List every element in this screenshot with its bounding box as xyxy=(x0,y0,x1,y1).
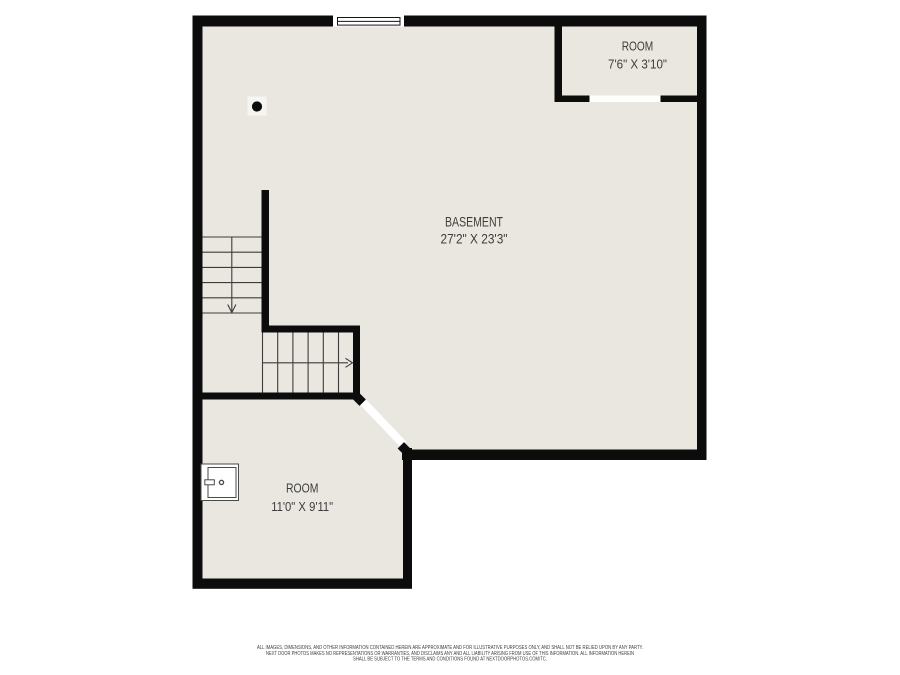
svg-text:27'2" X 23'3": 27'2" X 23'3" xyxy=(441,231,508,246)
svg-text:SHALL BE SUBJECT TO THE TERMS: SHALL BE SUBJECT TO THE TERMS AND CONDIT… xyxy=(353,657,547,663)
svg-text:7'6" X 3'10": 7'6" X 3'10" xyxy=(608,58,667,72)
svg-text:ROOM: ROOM xyxy=(622,40,654,54)
svg-text:ROOM: ROOM xyxy=(286,482,319,496)
svg-text:BASEMENT: BASEMENT xyxy=(445,215,503,230)
svg-text:11'0" X 9'11": 11'0" X 9'11" xyxy=(271,500,333,514)
